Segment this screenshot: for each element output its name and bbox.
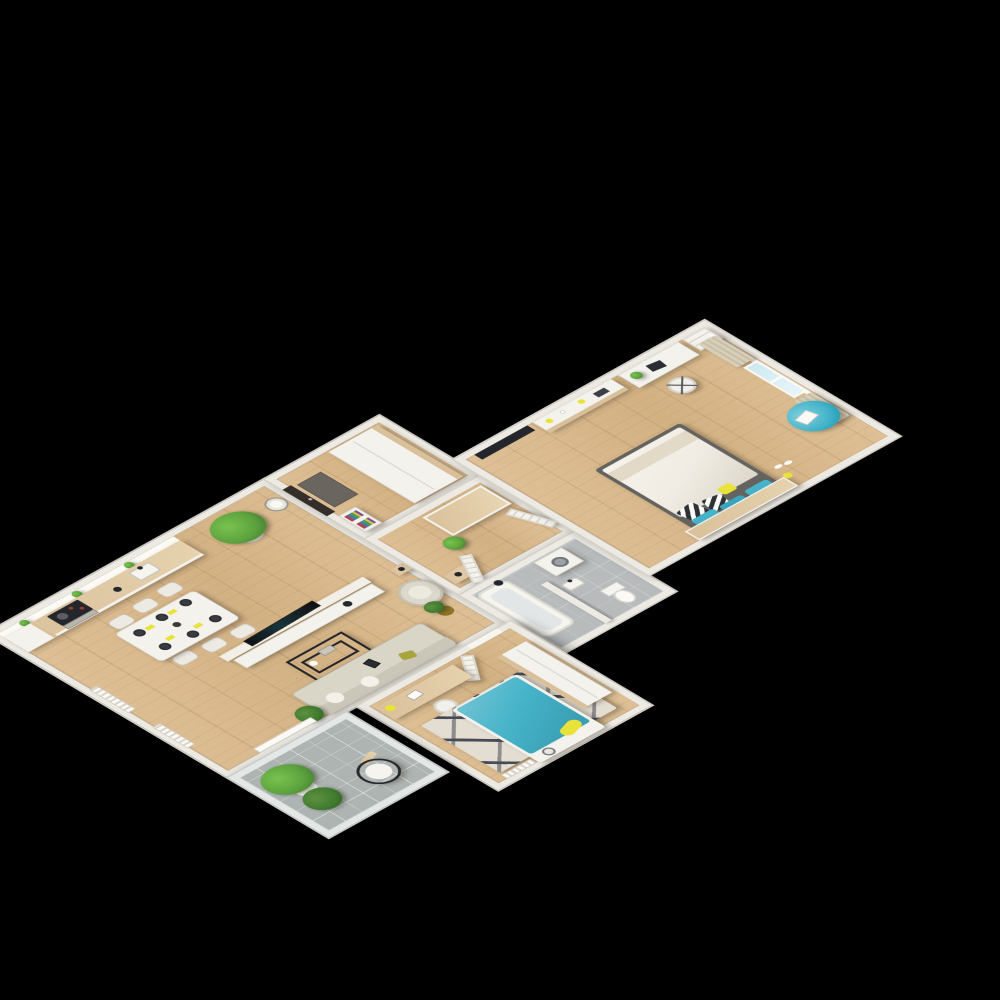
faucet-icon bbox=[136, 566, 144, 571]
decor-icon bbox=[453, 571, 464, 577]
laptop-icon bbox=[646, 360, 668, 372]
armchair-cushion bbox=[403, 583, 436, 602]
yellow-cup-icon bbox=[576, 398, 587, 404]
window-mullion bbox=[770, 376, 782, 383]
tablet-icon bbox=[363, 659, 381, 669]
window-glass bbox=[743, 360, 808, 398]
office-chair bbox=[662, 373, 703, 397]
yellow-cup-icon bbox=[544, 418, 555, 424]
door-handle-icon bbox=[308, 498, 313, 501]
master-bed bbox=[594, 423, 787, 534]
slipper-icon bbox=[783, 460, 794, 466]
radiator bbox=[89, 686, 136, 713]
radiator bbox=[152, 723, 195, 748]
floor-plan-render bbox=[0, 0, 1000, 1000]
stove-knob-icon bbox=[68, 606, 75, 610]
bathroom-sink bbox=[560, 577, 586, 592]
wire-chair bbox=[347, 753, 410, 789]
wall-clock-icon bbox=[259, 495, 293, 515]
pot-icon bbox=[54, 612, 70, 621]
chair-base-icon bbox=[667, 385, 698, 386]
slipper-icon bbox=[773, 463, 784, 469]
apartment-isometric-plan bbox=[0, 274, 1000, 866]
curtain bbox=[698, 335, 754, 367]
chair-cushion bbox=[360, 760, 398, 782]
sideboard bbox=[533, 379, 629, 433]
corner-plant-icon bbox=[198, 505, 278, 551]
decor-icon bbox=[397, 566, 407, 572]
washing-machine bbox=[533, 547, 584, 576]
washer-door-icon bbox=[548, 555, 573, 569]
desk-plant-icon bbox=[628, 370, 646, 380]
magazine-icon bbox=[794, 410, 818, 425]
book-stack-icon bbox=[593, 388, 610, 398]
bean-bag bbox=[776, 394, 851, 437]
wardrobe-door-line bbox=[352, 441, 434, 490]
stove-knob-icon bbox=[79, 606, 86, 610]
candle-icon bbox=[559, 410, 567, 415]
faucet-icon bbox=[566, 579, 573, 583]
wall-tv bbox=[474, 425, 535, 459]
book-row-icon bbox=[356, 516, 378, 529]
hall-plant-icon bbox=[438, 534, 471, 553]
